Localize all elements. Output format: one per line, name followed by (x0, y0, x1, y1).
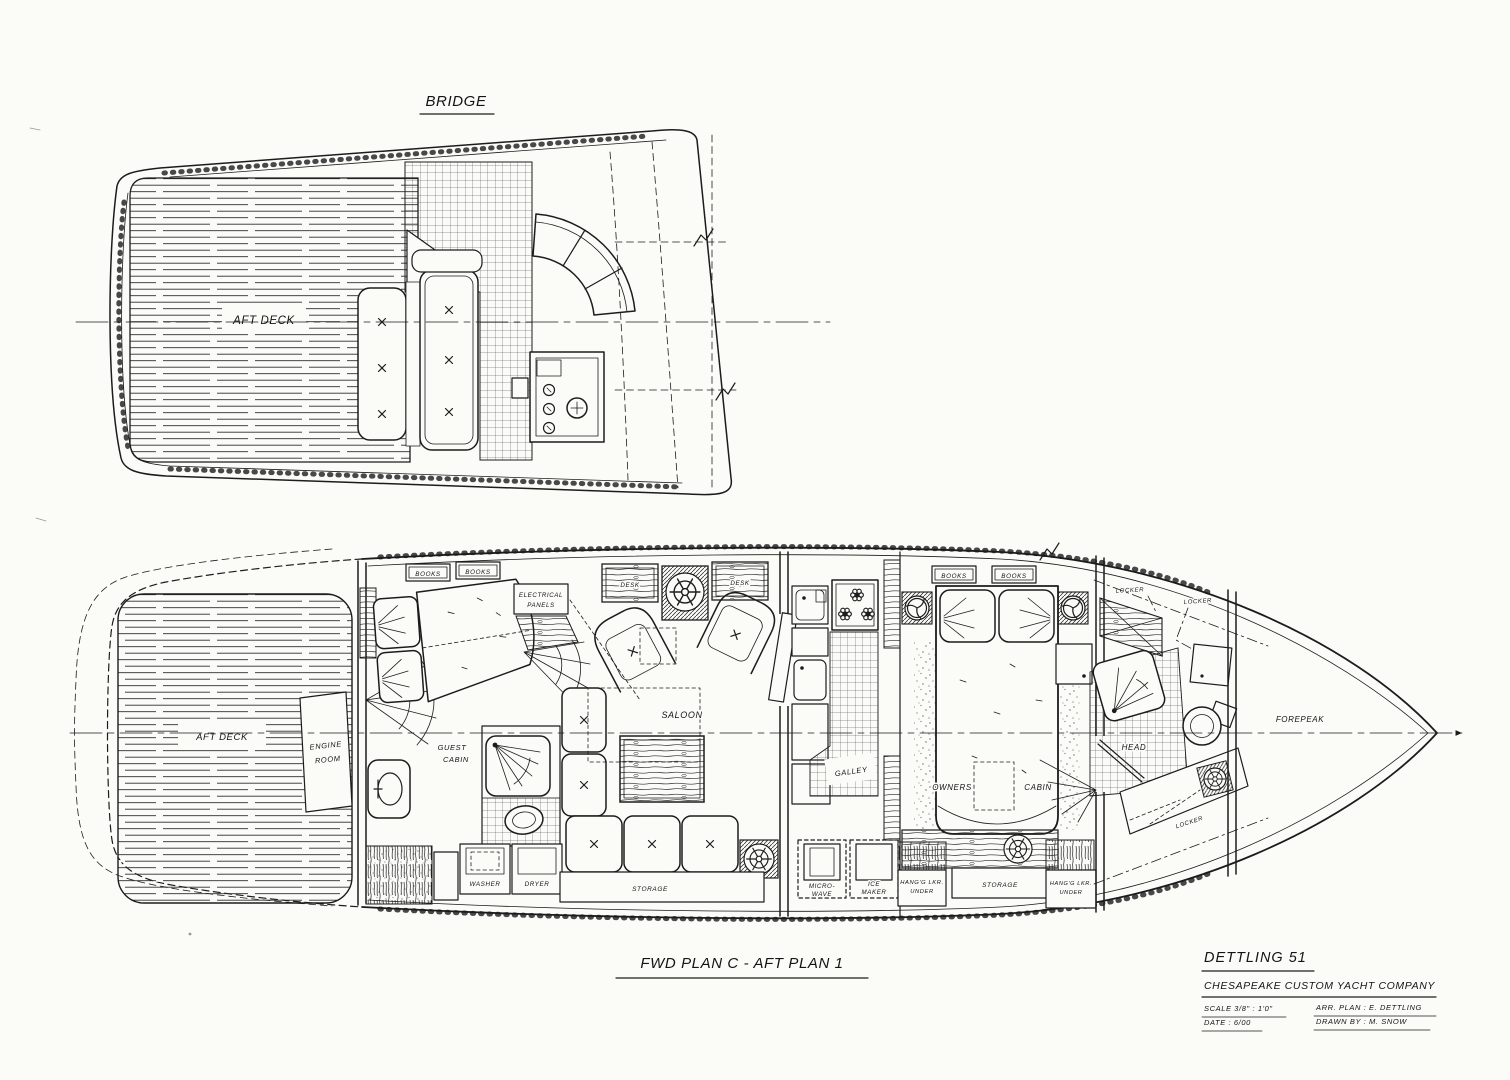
books-label: BOOKS (465, 569, 491, 576)
guest-bookshelves: BOOKS BOOKS (406, 562, 500, 581)
head-label: HEAD (1122, 743, 1147, 752)
hanging-locker-label-2: UNDER (910, 889, 934, 895)
hanging-locker-label-2: UNDER (1060, 890, 1083, 896)
saloon-table (620, 736, 704, 802)
books-label: BOOKS (415, 571, 441, 578)
scale-note: SCALE 3/8" : 1'0" (1204, 1004, 1273, 1013)
hanging-locker-label-1: HANG'G LKR. (900, 880, 943, 886)
ice-maker-cabinet: ICE MAKER (850, 840, 898, 898)
company-name: CHESAPEAKE CUSTOM YACHT COMPANY (1204, 980, 1435, 992)
galley: GALLEY MICRO- WAVE ICE MAKER (792, 552, 900, 916)
forepeak-label: FOREPEAK (1276, 715, 1324, 724)
main-plan: AFT DECK ENGINE ROOM GUEST CABIN (70, 543, 1462, 919)
hanging-locker-stbd: HANG'G LKR. UNDER (1046, 840, 1096, 908)
dryer-label: DRYER (525, 881, 550, 888)
caption: FWD PLAN C - AFT PLAN 1 (616, 955, 868, 978)
hanging-locker-label-1: HANG'G LKR. (1050, 881, 1092, 887)
bridge-title: BRIDGE (425, 93, 487, 110)
desk-label: DESK (620, 582, 640, 589)
ice-maker-label-2: MAKER (861, 889, 886, 896)
books-label: BOOKS (1001, 573, 1027, 580)
locker-cabinet-top: LOCKER (1176, 598, 1232, 686)
bridge-plan: AFT DECK BRIDGE (76, 93, 830, 495)
engine-room: ENGINE ROOM (300, 692, 352, 812)
laundry: WASHER DRYER (460, 844, 562, 894)
main-aft-deck-label: AFT DECK (195, 732, 248, 743)
books-label: BOOKS (941, 573, 967, 580)
microwave-label-1: MICRO- (809, 883, 835, 890)
bridge-aft-deck-label: AFT DECK (232, 315, 295, 327)
locker-shelf: LOCKER (1100, 587, 1162, 656)
guest-cabin-label-1: GUEST (438, 743, 468, 752)
electrical-panels-label-1: ELECTRICAL (519, 592, 563, 599)
nightstand (1056, 644, 1092, 684)
helm-wheel-plaque (662, 566, 708, 620)
arrangement-plan-note: ARR. PLAN : E. DETTLING (1315, 1003, 1422, 1012)
owners-cabin-label-2: CABIN (1024, 783, 1051, 792)
storage-label: STORAGE (982, 882, 1018, 889)
ice-maker-label-1: ICE (868, 881, 880, 888)
locker-label: LOCKER (1175, 816, 1204, 830)
locker-label: LOCKER (1116, 587, 1145, 594)
fwd-head: LOCKER LOCKER HEAD LOCKER (1090, 587, 1248, 834)
drawn-by-note: DRAWN BY : M. SNOW (1316, 1017, 1407, 1026)
model-name: DETTLING 51 (1204, 950, 1307, 966)
title-block: DETTLING 51 CHESAPEAKE CUSTOM YACHT COMP… (1202, 950, 1436, 1031)
saloon: DESK DESK SALOON STORAGE (560, 562, 781, 902)
owners-bookshelves: BOOKS BOOKS (932, 566, 1036, 583)
guest-head (482, 726, 560, 846)
owners-cabin-label-1: OWNERS (932, 783, 972, 792)
guest-cabin-label-2: CABIN (443, 755, 469, 764)
electrical-panels-label-2: PANELS (527, 602, 555, 609)
blueprint-canvas: AFT DECK BRIDGE (0, 0, 1510, 1080)
saloon-label: SALOON (661, 710, 702, 720)
storage-label: STORAGE (632, 886, 668, 893)
stove (832, 580, 878, 630)
date-note: DATE : 6/00 (1204, 1018, 1251, 1027)
bridge-helm-seat (533, 214, 635, 315)
hanging-locker-port: HANG'G LKR. UNDER (898, 842, 946, 906)
microwave-label-2: WAVE (812, 891, 832, 898)
yacht-arrangement-drawing: AFT DECK BRIDGE (0, 0, 1510, 1080)
plan-caption: FWD PLAN C - AFT PLAN 1 (640, 955, 843, 972)
desk-label: DESK (730, 580, 750, 587)
owners-bed (936, 586, 1058, 834)
washer-label: WASHER (469, 881, 500, 888)
microwave-cabinet: MICRO- WAVE (798, 840, 846, 898)
locker-label: LOCKER (1184, 598, 1213, 606)
